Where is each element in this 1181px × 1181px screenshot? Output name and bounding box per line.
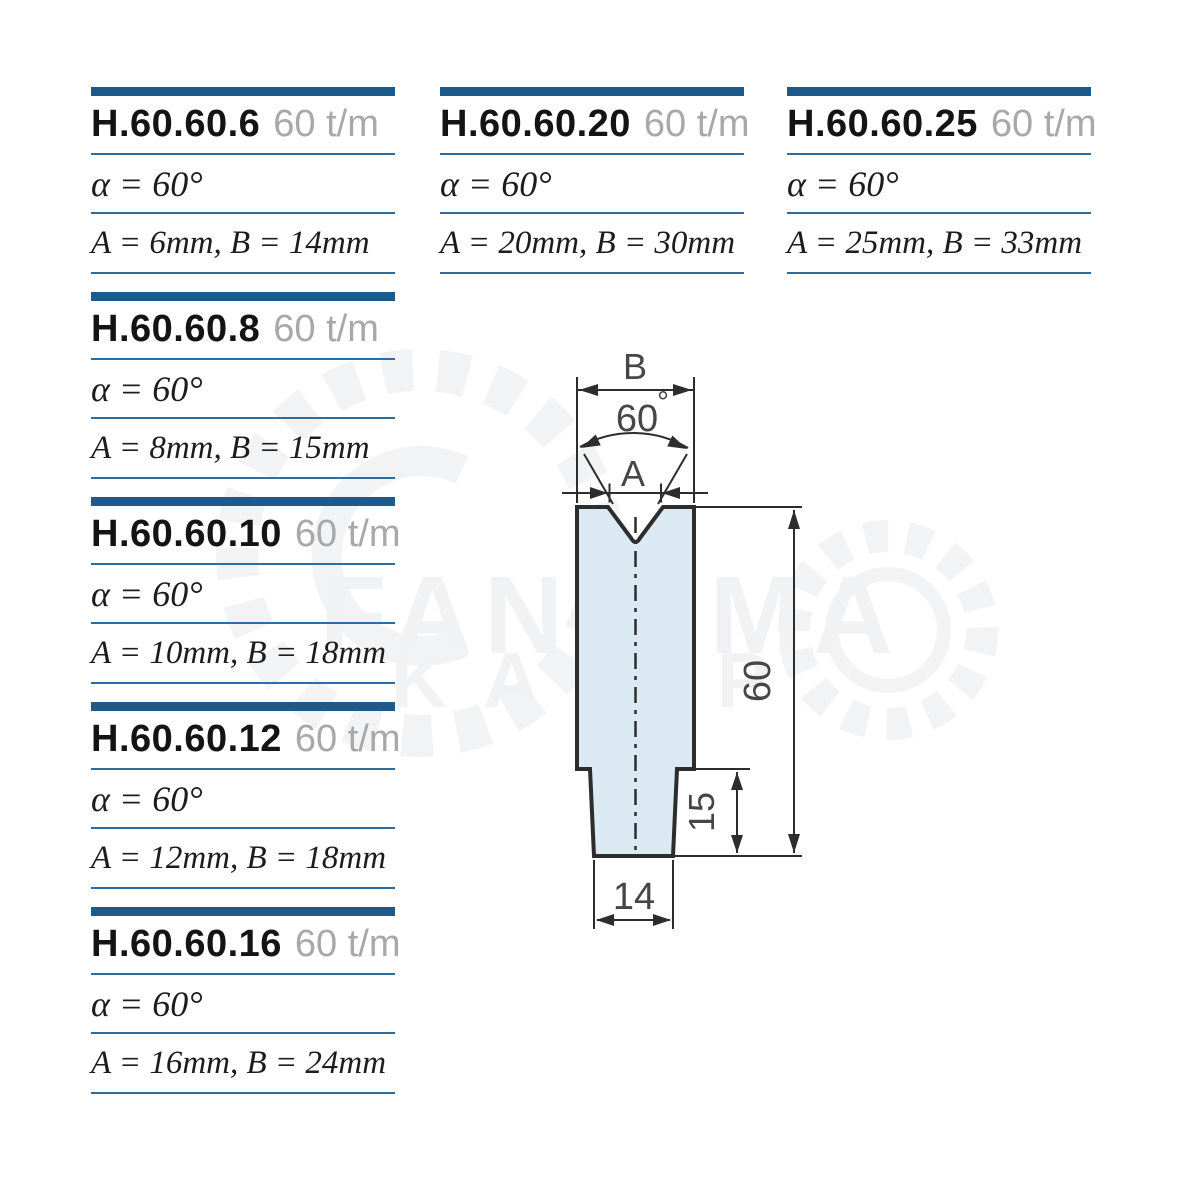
- entry-tonnage: 60 t/m: [295, 718, 401, 761]
- accent-bar: [91, 702, 395, 711]
- entry-code: H.60.60.25: [787, 103, 978, 146]
- entry-dims: A = 16mm, B = 24mm: [91, 1034, 395, 1092]
- entry-code: H.60.60.6: [91, 103, 260, 146]
- divider: [91, 1092, 395, 1094]
- accent-bar: [91, 907, 395, 916]
- entry-card: H.60.60.16 60 t/m α = 60° A = 16mm, B = …: [91, 907, 395, 1094]
- entry-dims: A = 25mm, B = 33mm: [787, 214, 1091, 272]
- entry-card: H.60.60.25 60 t/m α = 60° A = 25mm, B = …: [787, 87, 1091, 274]
- entry-title: H.60.60.12 60 t/m: [91, 711, 395, 768]
- entry-code: H.60.60.8: [91, 308, 260, 351]
- entry-card: H.60.60.12 60 t/m α = 60° A = 12mm, B = …: [91, 702, 395, 889]
- entry-tonnage: 60 t/m: [273, 103, 379, 146]
- entry-alpha: α = 60°: [91, 770, 395, 827]
- divider: [91, 272, 395, 274]
- divider: [787, 272, 1091, 274]
- entry-dims: A = 8mm, B = 15mm: [91, 419, 395, 477]
- catalog-page: FANIRMA KALIP H.60.60.6 60 t/m α = 60° A…: [0, 0, 1181, 1181]
- entry-dims: A = 10mm, B = 18mm: [91, 624, 395, 682]
- entry-tonnage: 60 t/m: [991, 103, 1097, 146]
- spec-column-2: H.60.60.20 60 t/m α = 60° A = 20mm, B = …: [440, 87, 744, 292]
- divider: [91, 477, 395, 479]
- accent-bar: [787, 87, 1091, 96]
- divider: [91, 682, 395, 684]
- entry-card: H.60.60.10 60 t/m α = 60° A = 10mm, B = …: [91, 497, 395, 684]
- entry-code: H.60.60.12: [91, 718, 282, 761]
- entry-code: H.60.60.10: [91, 513, 282, 556]
- accent-bar: [91, 87, 395, 96]
- dim-label-degree-mark: °: [657, 386, 669, 419]
- dim-label-angle: 60: [616, 398, 658, 440]
- accent-bar: [91, 497, 395, 506]
- entry-code: H.60.60.20: [440, 103, 631, 146]
- dim-label-base-width-14: 14: [613, 876, 655, 918]
- divider: [440, 272, 744, 274]
- entry-alpha: α = 60°: [91, 155, 395, 212]
- dim-label-b: B: [623, 346, 647, 387]
- entry-dims: A = 6mm, B = 14mm: [91, 214, 395, 272]
- entry-card: H.60.60.20 60 t/m α = 60° A = 20mm, B = …: [440, 87, 744, 274]
- entry-tonnage: 60 t/m: [644, 103, 750, 146]
- entry-alpha: α = 60°: [91, 565, 395, 622]
- spec-column-3: H.60.60.25 60 t/m α = 60° A = 25mm, B = …: [787, 87, 1091, 292]
- entry-code: H.60.60.16: [91, 923, 282, 966]
- entry-title: H.60.60.6 60 t/m: [91, 96, 395, 153]
- entry-alpha: α = 60°: [91, 360, 395, 417]
- entry-title: H.60.60.8 60 t/m: [91, 301, 395, 358]
- entry-title: H.60.60.10 60 t/m: [91, 506, 395, 563]
- dim-label-shoulder-15: 15: [681, 792, 722, 832]
- spec-column-1: H.60.60.6 60 t/m α = 60° A = 6mm, B = 14…: [91, 87, 395, 1112]
- entry-title: H.60.60.16 60 t/m: [91, 916, 395, 973]
- entry-dims: A = 12mm, B = 18mm: [91, 829, 395, 887]
- entry-alpha: α = 60°: [440, 155, 744, 212]
- entry-tonnage: 60 t/m: [295, 923, 401, 966]
- entry-card: H.60.60.8 60 t/m α = 60° A = 8mm, B = 15…: [91, 292, 395, 479]
- accent-bar: [91, 292, 395, 301]
- entry-tonnage: 60 t/m: [295, 513, 401, 556]
- entry-card: H.60.60.6 60 t/m α = 60° A = 6mm, B = 14…: [91, 87, 395, 274]
- entry-tonnage: 60 t/m: [273, 308, 379, 351]
- entry-alpha: α = 60°: [787, 155, 1091, 212]
- entry-alpha: α = 60°: [91, 975, 395, 1032]
- entry-title: H.60.60.20 60 t/m: [440, 96, 744, 153]
- divider: [91, 887, 395, 889]
- accent-bar: [440, 87, 744, 96]
- entry-dims: A = 20mm, B = 30mm: [440, 214, 744, 272]
- dim-label-height-60: 60: [737, 660, 779, 702]
- dim-label-a: A: [621, 453, 645, 494]
- entry-title: H.60.60.25 60 t/m: [787, 96, 1091, 153]
